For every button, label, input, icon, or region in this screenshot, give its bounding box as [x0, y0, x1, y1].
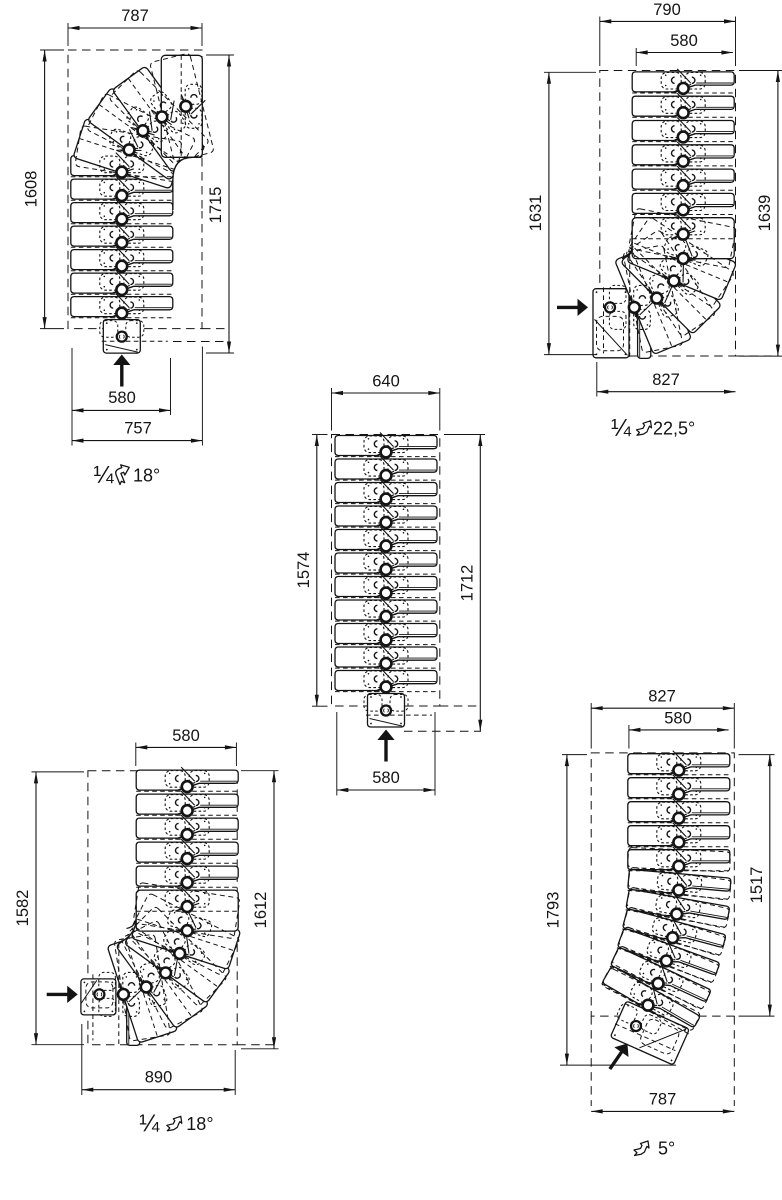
- svg-text:1517: 1517: [748, 867, 766, 904]
- svg-text:827: 827: [652, 371, 680, 389]
- svg-text:1631: 1631: [527, 195, 545, 232]
- svg-text:580: 580: [670, 32, 698, 50]
- svg-text:¼: ¼: [93, 462, 114, 489]
- svg-text:1712: 1712: [459, 565, 477, 602]
- svg-text:580: 580: [664, 710, 692, 728]
- svg-text:890: 890: [145, 1069, 173, 1087]
- svg-text:827: 827: [648, 688, 676, 706]
- svg-text:580: 580: [172, 727, 200, 745]
- svg-text:1612: 1612: [252, 892, 270, 929]
- svg-text:1793: 1793: [545, 892, 563, 929]
- svg-text:580: 580: [372, 769, 400, 787]
- svg-text:757: 757: [124, 420, 152, 438]
- svg-text:5°: 5°: [658, 1139, 675, 1159]
- svg-text:1574: 1574: [295, 552, 313, 589]
- svg-text:1582: 1582: [14, 890, 32, 927]
- svg-text:580: 580: [108, 389, 136, 407]
- svg-text:1639: 1639: [756, 195, 774, 232]
- svg-text:640: 640: [372, 373, 400, 391]
- svg-text:1715: 1715: [207, 187, 225, 224]
- svg-text:790: 790: [653, 1, 681, 19]
- svg-text:18°: 18°: [133, 466, 160, 486]
- svg-text:787: 787: [649, 1091, 677, 1109]
- svg-text:1608: 1608: [23, 171, 41, 208]
- svg-text:18°: 18°: [186, 1114, 213, 1134]
- svg-text:787: 787: [121, 7, 149, 25]
- svg-text:¼: ¼: [139, 1110, 160, 1137]
- svg-text:22,5°: 22,5°: [653, 418, 695, 438]
- svg-text:¼: ¼: [611, 414, 632, 441]
